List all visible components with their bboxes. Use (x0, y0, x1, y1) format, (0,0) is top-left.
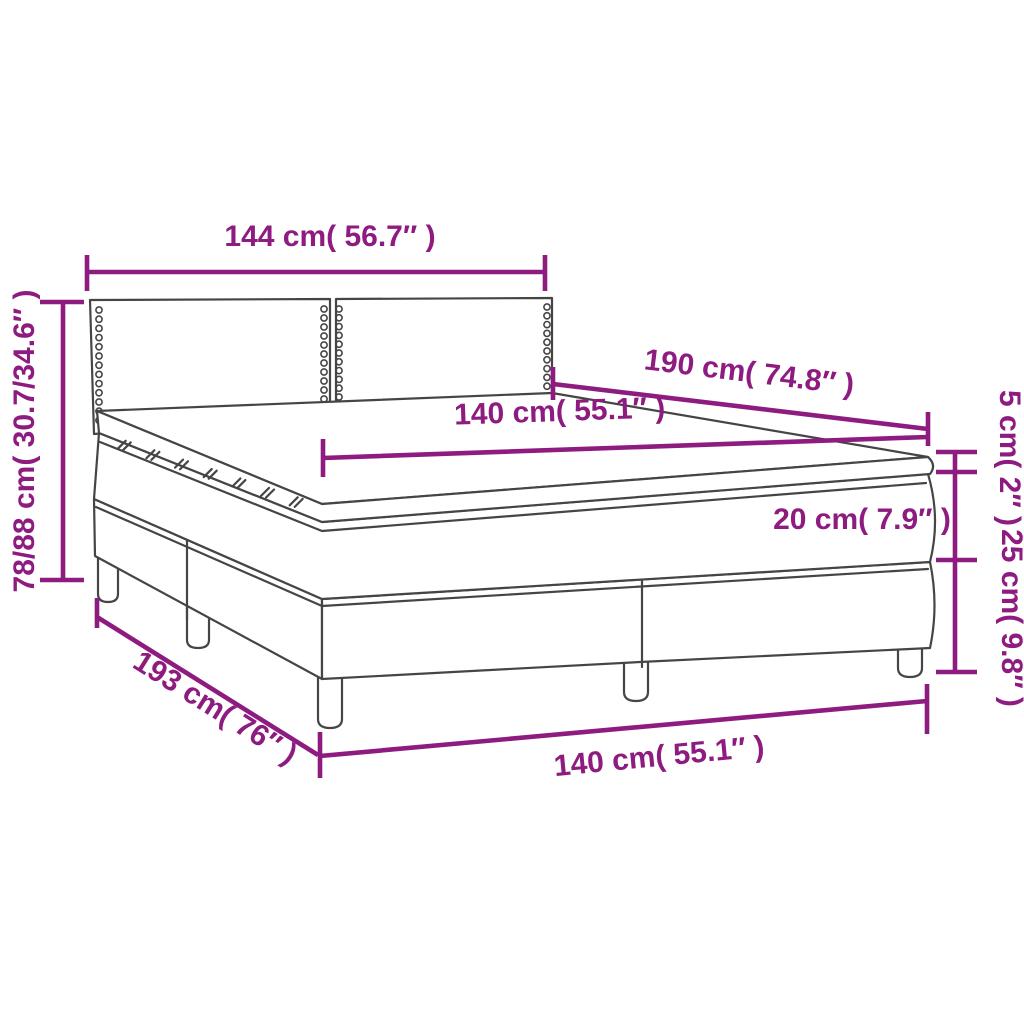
dim-headboard-width-label: 144 cm( 56.7″ ) (224, 220, 435, 253)
dim-base-length-label: 193 cm( 76″ ) (127, 645, 302, 772)
dim-overall-height-label: 78/88 cm( 30.7/34.6″ ) (8, 290, 41, 593)
dim-base-width-label: 140 cm( 55.1″ ) (552, 730, 765, 783)
product-image: 144 cm( 56.7″ ) 78/88 cm( 30.7/34.6″ ) 1… (0, 0, 1024, 1024)
dim-bed-length-label: 190 cm( 74.8″ ) (642, 343, 856, 401)
dim-topper-height-label: 5 cm( 2″ ) (993, 390, 1024, 526)
dim-right-heights: 5 cm( 2″ ) 25 cm( 9.8″ ) (936, 390, 1024, 707)
dim-base-width: 140 cm( 55.1″ ) (320, 684, 927, 783)
dim-mattress-height-label: 20 cm( 7.9″ ) (773, 503, 951, 536)
dim-base-height-label: 25 cm( 9.8″ ) (995, 529, 1024, 707)
bed-dimension-diagram: 144 cm( 56.7″ ) 78/88 cm( 30.7/34.6″ ) 1… (0, 0, 1024, 1024)
dim-mattress-height: 20 cm( 7.9″ ) (773, 503, 951, 536)
dim-headboard-width: 144 cm( 56.7″ ) (87, 220, 545, 291)
bed-leg (318, 676, 342, 728)
dim-overall-height: 78/88 cm( 30.7/34.6″ ) (8, 290, 84, 593)
